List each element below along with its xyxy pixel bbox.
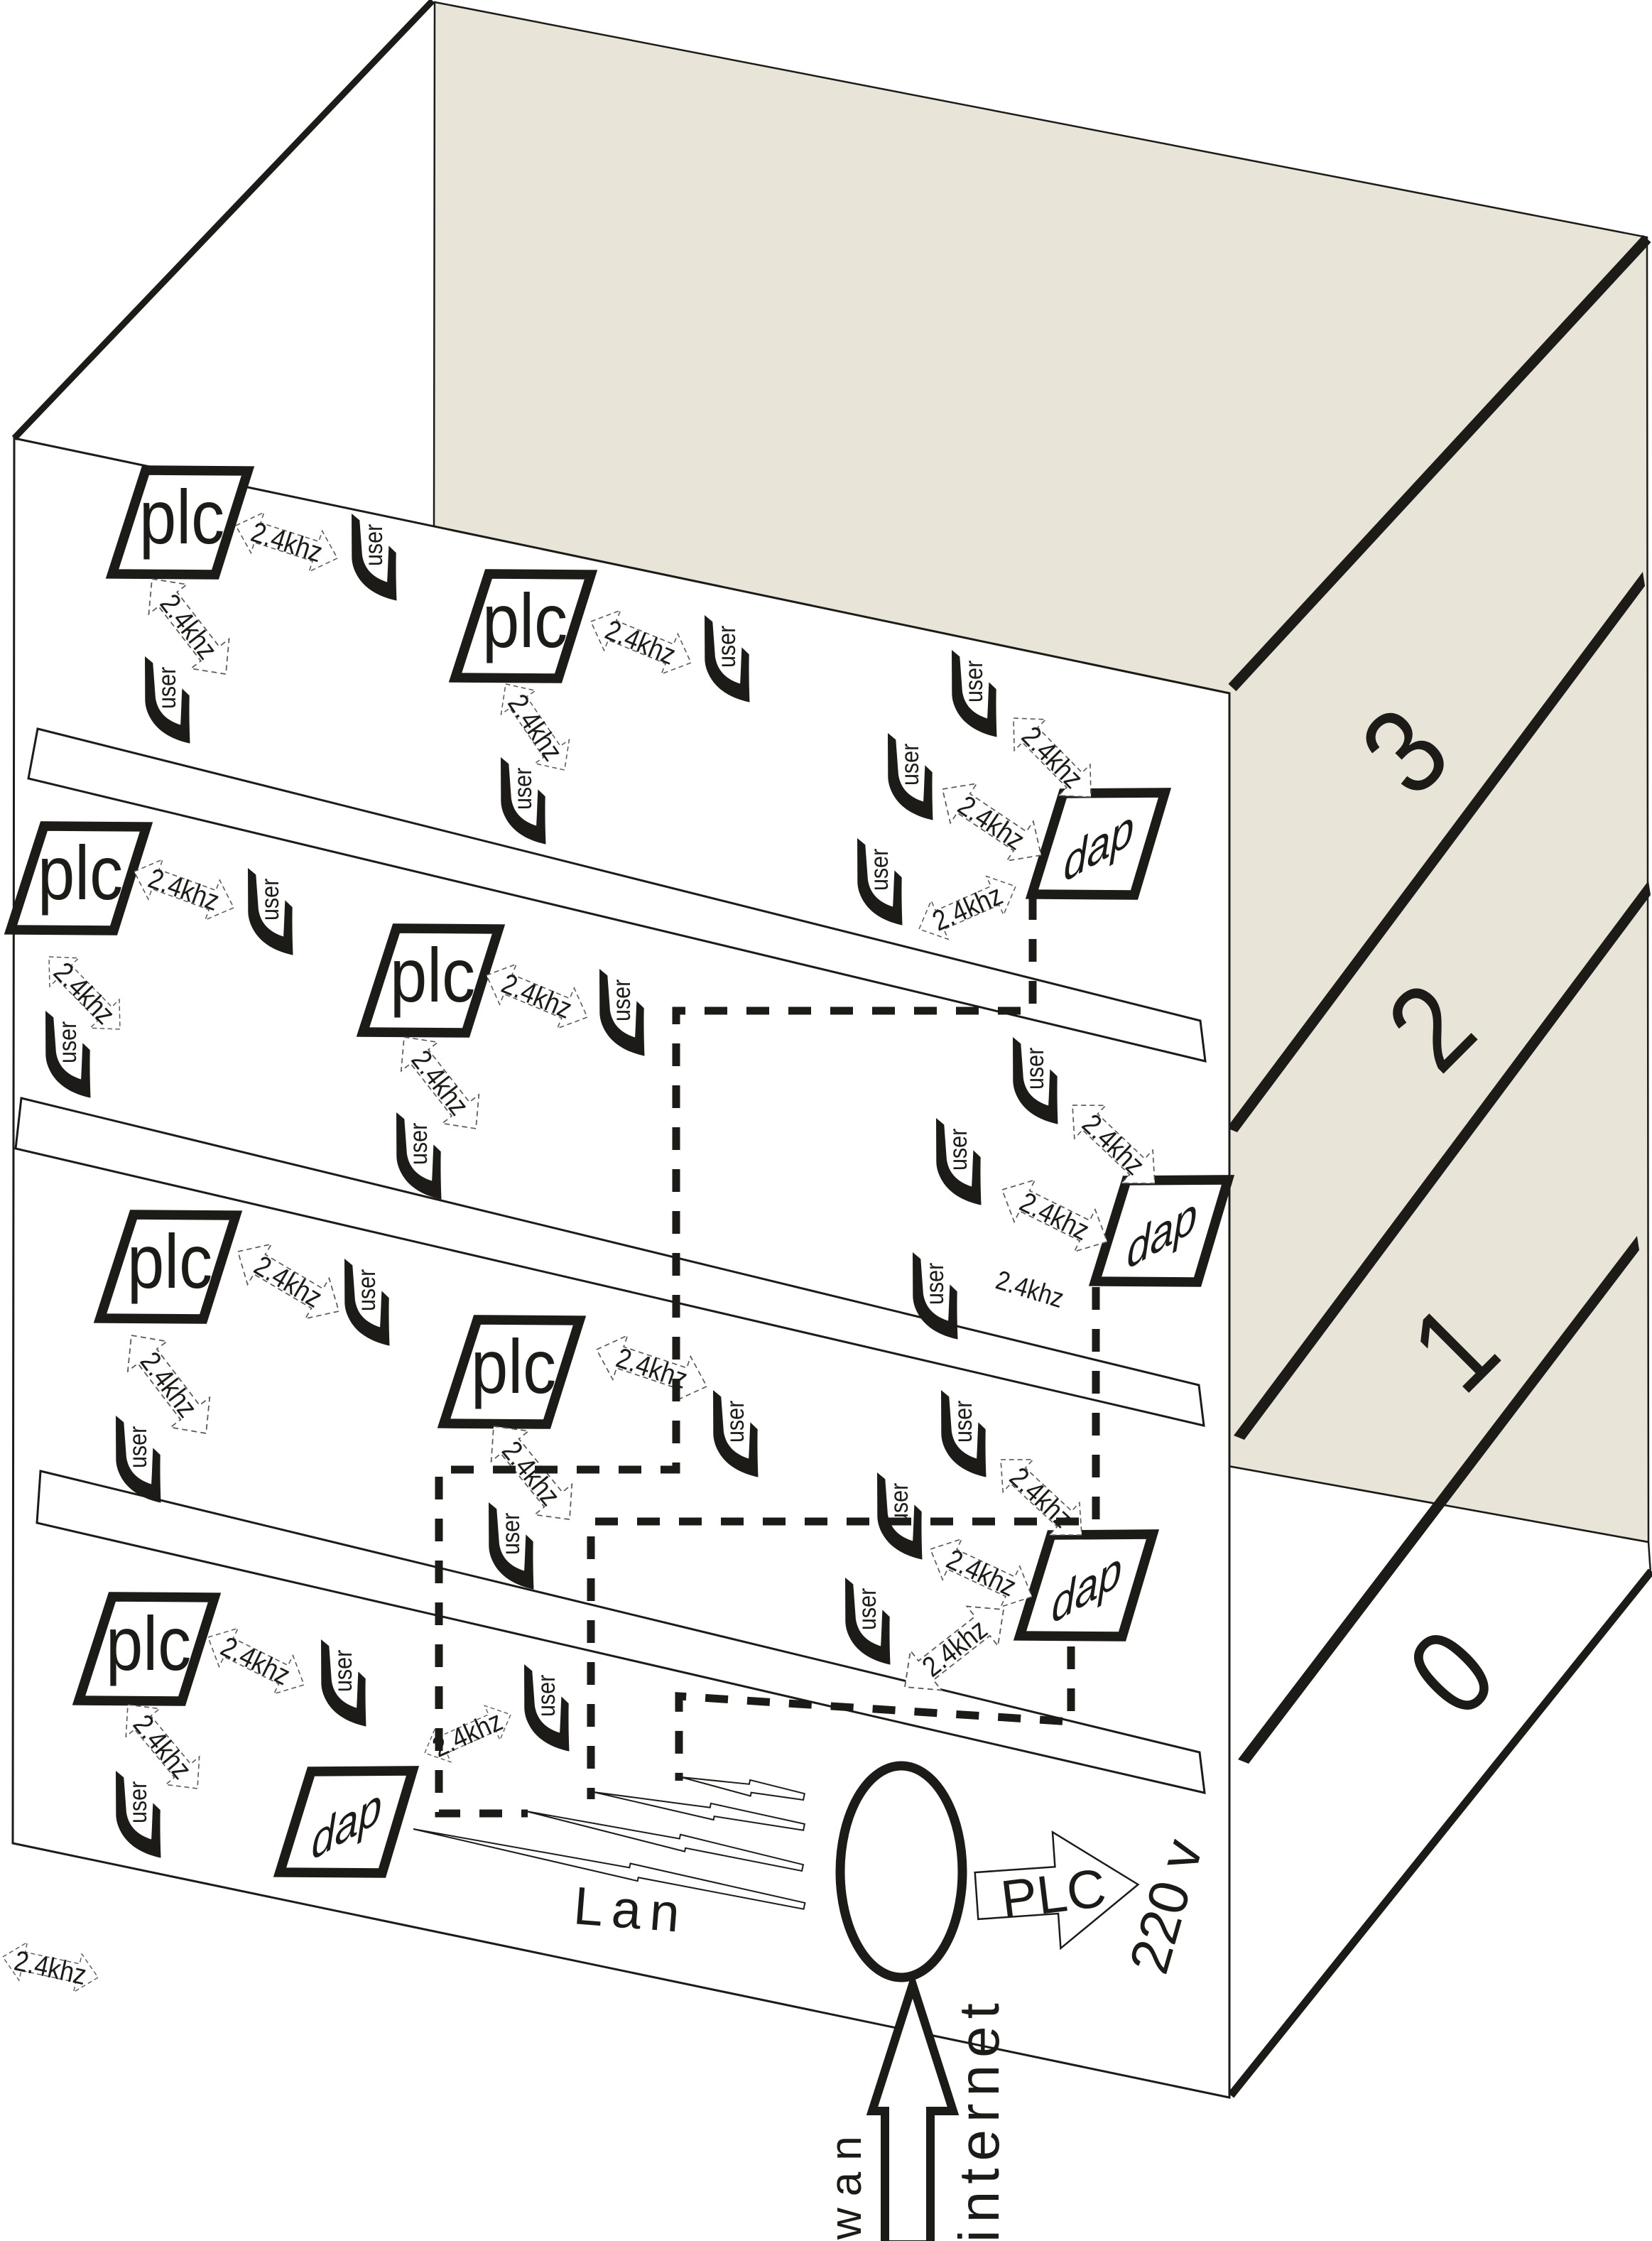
svg-text:plc: plc (38, 830, 123, 916)
svg-text:Lan: Lan (572, 1875, 690, 1943)
svg-text:plc: plc (127, 1219, 212, 1305)
svg-text:0: 0 (1383, 1604, 1521, 1742)
svg-text:internet: internet (947, 1996, 1011, 2241)
svg-text:plc: plc (106, 1601, 191, 1687)
svg-text:plc: plc (390, 933, 475, 1019)
svg-text:wan: wan (822, 2125, 871, 2240)
svg-text:plc: plc (482, 578, 567, 664)
svg-text:PLC: PLC (998, 1857, 1109, 1930)
svg-text:2.4khz: 2.4khz (11, 1944, 89, 1990)
svg-text:plc: plc (471, 1324, 556, 1410)
svg-text:plc: plc (139, 474, 224, 560)
